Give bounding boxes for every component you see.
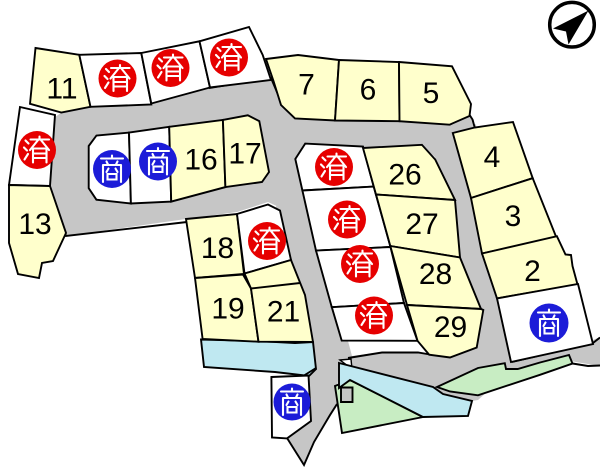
svg-text:16: 16	[184, 144, 217, 177]
svg-text:28: 28	[419, 258, 452, 291]
svg-text:13: 13	[18, 208, 51, 241]
svg-text:4: 4	[484, 141, 501, 174]
svg-text:19: 19	[211, 293, 244, 326]
svg-text:6: 6	[360, 74, 377, 107]
svg-text:21: 21	[267, 296, 300, 329]
svg-text:29: 29	[434, 311, 467, 344]
svg-text:2: 2	[524, 255, 541, 288]
svg-text:11: 11	[46, 73, 77, 106]
svg-text:27: 27	[405, 208, 438, 241]
svg-text:3: 3	[505, 200, 522, 233]
svg-text:17: 17	[228, 138, 261, 171]
svg-text:18: 18	[201, 232, 234, 265]
svg-text:26: 26	[388, 159, 421, 192]
svg-text:5: 5	[423, 77, 440, 110]
svg-text:7: 7	[298, 69, 315, 102]
